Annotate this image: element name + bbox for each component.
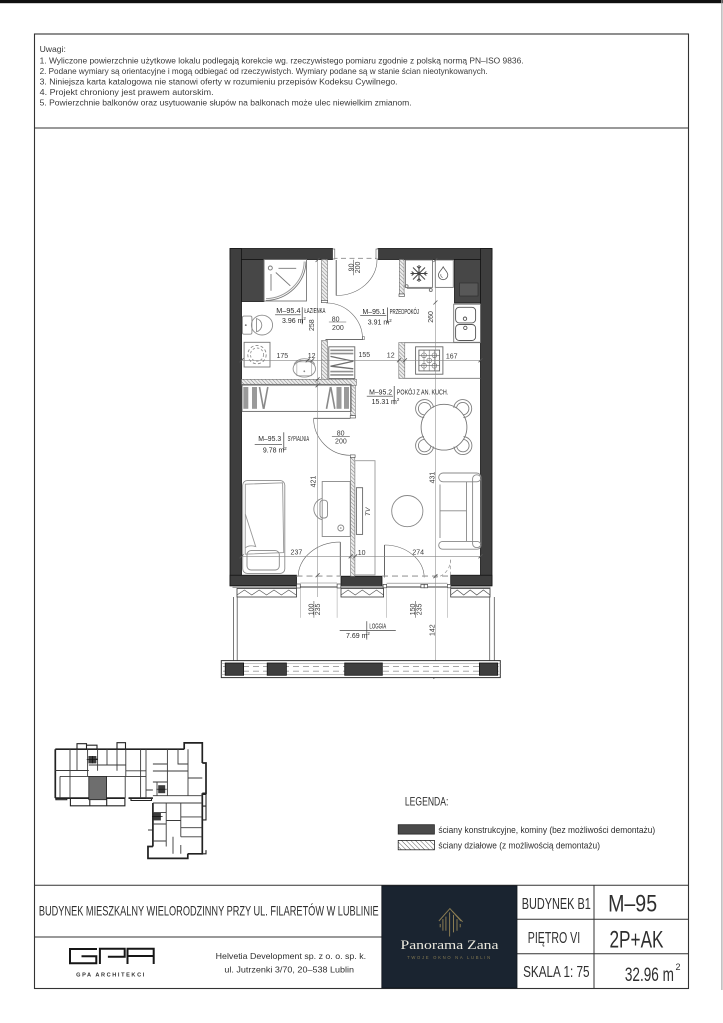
- svg-text:431: 431: [429, 472, 436, 484]
- svg-text:15.31 m2: 15.31 m2: [372, 397, 400, 406]
- svg-text:TV: TV: [365, 506, 372, 516]
- svg-text:235: 235: [315, 603, 322, 615]
- svg-text:Helvetia Development sp. z o.: Helvetia Development sp. z o. o. sp. k.: [216, 951, 366, 961]
- svg-text:200: 200: [335, 438, 347, 445]
- svg-text:12: 12: [387, 352, 395, 359]
- svg-text:GPA ARCHITEKCI: GPA ARCHITEKCI: [76, 973, 146, 979]
- svg-text:274: 274: [412, 549, 424, 556]
- svg-text:175: 175: [276, 353, 288, 360]
- svg-text:POKÓJ Z AN. KUCH.: POKÓJ Z AN. KUCH.: [397, 387, 449, 396]
- svg-text:10: 10: [358, 550, 366, 557]
- svg-text:12: 12: [308, 353, 316, 360]
- svg-text:2. Podane wymiary są orientacy: 2. Podane wymiary są orientacyjne i mogą…: [40, 66, 488, 76]
- svg-text:ŁAZIENKA: ŁAZIENKA: [304, 306, 325, 315]
- svg-text:167: 167: [446, 353, 458, 360]
- svg-text:142: 142: [429, 624, 436, 636]
- svg-text:200: 200: [355, 261, 362, 273]
- svg-text:ul. Jutrzenki 3/70, 20–538 Lub: ul. Jutrzenki 3/70, 20–538 Lublin: [224, 965, 354, 975]
- svg-text:7.69 m2: 7.69 m2: [346, 631, 370, 640]
- svg-text:M–95.1: M–95.1: [363, 307, 386, 316]
- svg-text:2: 2: [676, 962, 681, 972]
- svg-text:3.96 m2: 3.96 m2: [282, 316, 306, 325]
- svg-text:235: 235: [417, 603, 424, 615]
- svg-text:SKALA 1: 75: SKALA 1: 75: [523, 964, 589, 981]
- svg-text:SYPIALNIA: SYPIALNIA: [288, 434, 310, 443]
- svg-text:M–95.4: M–95.4: [276, 306, 300, 315]
- svg-text:421: 421: [311, 476, 318, 488]
- svg-text:LEGENDA:: LEGENDA:: [405, 797, 449, 809]
- svg-text:Uwagi:: Uwagi:: [40, 44, 66, 54]
- svg-text:4. Projekt chroniony jest praw: 4. Projekt chroniony jest prawem autorsk…: [40, 87, 214, 97]
- svg-text:2P+AK: 2P+AK: [610, 926, 664, 953]
- svg-text:PRZEDPOKÓJ: PRZEDPOKÓJ: [390, 307, 420, 316]
- svg-text:5. Powierzchnie balkonów oraz: 5. Powierzchnie balkonów oraz usytuowani…: [40, 98, 412, 108]
- svg-text:3.91 m2: 3.91 m2: [368, 318, 392, 327]
- svg-text:260: 260: [428, 311, 435, 323]
- svg-text:Panorama Zana: Panorama Zana: [401, 937, 499, 952]
- svg-text:BUDYNEK B1: BUDYNEK B1: [522, 896, 591, 913]
- svg-text:32.96 m: 32.96 m: [625, 965, 674, 986]
- svg-text:1. Wyliczone powierzchnie użyt: 1. Wyliczone powierzchnie użytkowe lokal…: [40, 56, 524, 66]
- svg-text:M–95.2: M–95.2: [369, 387, 392, 396]
- svg-text:9.78 m2: 9.78 m2: [263, 446, 287, 455]
- svg-text:237: 237: [291, 550, 303, 557]
- svg-text:BUDYNEK MIESZKALNY WIELORODZIN: BUDYNEK MIESZKALNY WIELORODZINNY PRZY UL…: [39, 903, 379, 919]
- svg-text:ściany działowe (z możliwością: ściany działowe (z możliwością demontażu…: [438, 841, 600, 851]
- svg-text:3. Niniejsza karta katalogowa: 3. Niniejsza karta katalogowa nie stanow…: [40, 77, 398, 87]
- svg-text:PIĘTRO VI: PIĘTRO VI: [528, 930, 580, 947]
- svg-text:155: 155: [358, 352, 370, 359]
- svg-text:258: 258: [309, 319, 316, 331]
- svg-text:M–95: M–95: [608, 891, 657, 918]
- svg-text:200: 200: [332, 325, 344, 332]
- svg-text:TWOJE OKNO NA LUBLIN: TWOJE OKNO NA LUBLIN: [407, 955, 492, 960]
- svg-text:M–95.3: M–95.3: [258, 434, 281, 443]
- svg-text:ściany konstrukcyjne, kominy (: ściany konstrukcyjne, kominy (bez możliw…: [438, 825, 655, 835]
- svg-text:LOGGIA: LOGGIA: [369, 622, 386, 631]
